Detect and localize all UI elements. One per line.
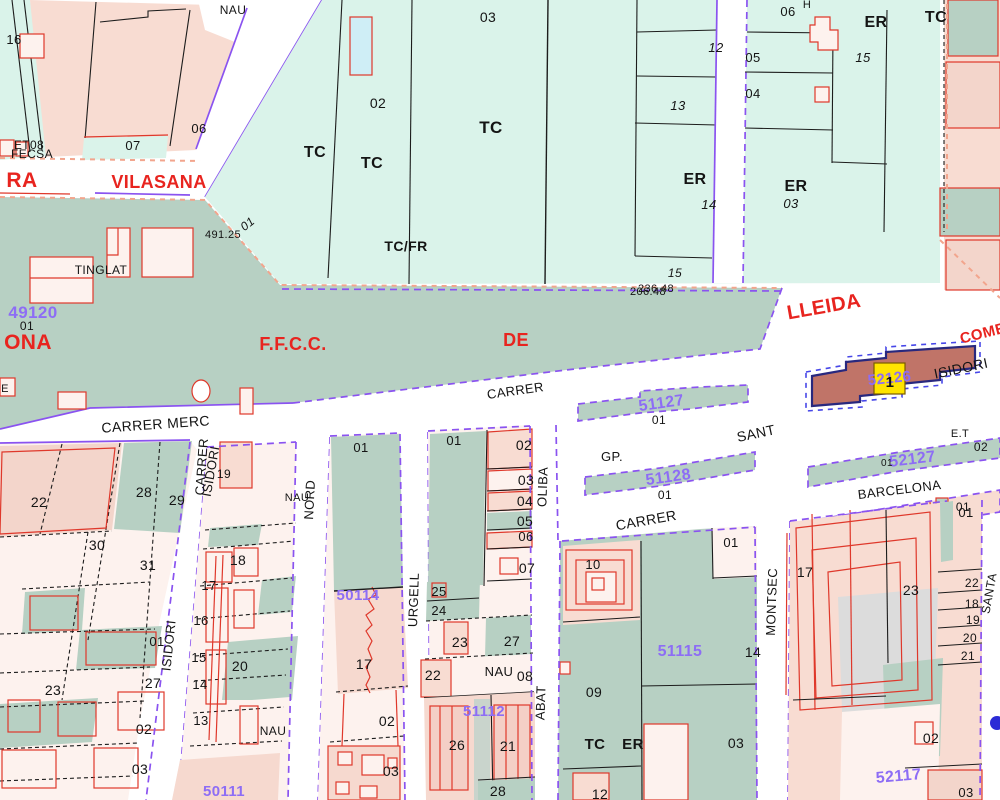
map-label: 05 [745,50,760,65]
map-label: 21 [500,738,516,754]
block-52117 [788,499,982,800]
map-label: 01 [723,535,738,550]
building-outline[interactable] [940,188,1000,236]
map-label: 28 [490,783,506,799]
map-label: 07 [519,560,535,576]
map-label: 01 [958,505,973,520]
parcel-area[interactable] [478,778,535,800]
map-label: 01 [652,413,666,427]
parcel-area[interactable] [258,576,296,615]
map-label: 1 [886,374,895,391]
building-outline[interactable] [220,442,252,488]
map-label: 04 [517,493,533,509]
building-outline[interactable] [928,770,982,800]
building-outline [362,755,384,775]
map-label: 03 [480,9,496,25]
parcel-area[interactable] [331,434,403,591]
map-label: VILASANA [111,172,206,192]
map-label: 18 [965,597,979,611]
map-label: 15 [191,650,206,665]
map-label: 14 [745,644,761,660]
parcel-area[interactable] [248,697,290,748]
map-label: GP. [601,449,623,464]
map-label: 22 [965,576,979,590]
map-label: TC/FR [384,238,427,254]
building-outline[interactable] [948,0,998,56]
map-label: 03 [728,735,744,751]
map-label: 18 [230,552,246,568]
map-label: TC [361,155,383,172]
map-label: 13 [193,713,208,728]
map-label: 23 [452,634,468,650]
map-label: 05 [517,513,533,529]
map-label: 28 [136,484,152,500]
map-label: 23 [903,582,919,598]
map-label: 02 [516,437,532,453]
map-label: H [803,0,811,11]
parcel-area[interactable] [712,526,757,579]
map-label: 20 [232,658,248,674]
map-label: 02 [136,721,152,737]
map-label: TC [925,9,947,26]
building-outline[interactable] [142,228,193,277]
map-label: 07 [125,138,140,153]
map-label: ER [864,14,887,31]
map-label: 15 [668,266,682,280]
map-label: DE [503,330,529,350]
map-label: 12 [708,40,724,55]
building-outline[interactable] [240,388,253,414]
map-label: 13 [670,98,686,113]
map-label: 26 [449,737,465,753]
map-label: OLIBA [534,466,550,507]
map-label: 17 [797,564,813,580]
map-label: ER [784,178,807,195]
tank-circle[interactable] [192,380,210,402]
map-label: 206.48 [630,286,666,298]
map-label: TC [479,118,502,137]
map-label: 23 [45,682,61,698]
map-label: 06 [518,529,533,544]
map-label: 03 [132,761,148,777]
map-label: 02 [974,440,988,454]
map-label: TC [585,736,606,753]
building-outline[interactable] [58,392,86,409]
map-label: ABAT [532,685,548,720]
map-label: 15 [855,50,871,65]
map-label: 03 [383,763,399,779]
map-label: 03 [958,785,973,800]
map-label: 25 [431,584,446,599]
map-label: ONA [4,331,52,354]
building-outline [592,578,604,590]
map-label: F.F.C.C. [259,334,326,354]
building-outline[interactable] [350,17,372,75]
map-label: 29 [169,492,185,508]
map-label: 20 [963,631,977,645]
map-label: NAU [220,3,247,17]
map-label: E.T [951,428,969,440]
map-label: 27 [145,675,161,691]
map-label: 14 [192,677,207,692]
building-outline [560,662,570,674]
map-label: 09 [586,684,602,700]
block-nord-urgell [318,433,408,800]
map-label: 30 [89,537,105,553]
right-top-column [940,0,1000,298]
map-label: 01 [658,488,672,502]
map-label: 06 [780,4,795,19]
map-label: 08 [517,668,533,684]
building-outline[interactable] [946,62,1000,128]
map-label: ER [683,171,706,188]
parcel-area[interactable] [428,431,486,587]
parcel-area[interactable] [0,443,122,537]
map-label: URGELL [405,572,422,627]
cadastral-map: 16NAU0607ET08FECSARAVILASANA0203TCTCTCTC… [0,0,1000,800]
map-label: 16 [193,613,208,628]
map-label: 24 [431,603,446,618]
map-label: 51115 [658,643,703,660]
map-label: 01 [881,458,893,469]
map-label: 10 [585,557,600,572]
map-label: 06 [191,121,206,136]
building-outline [360,786,377,798]
map-label: 491.25 [205,229,241,241]
map-label: 02 [370,95,386,111]
map-label: 50111 [203,783,245,800]
map-label: 22 [425,667,441,683]
map-label: 12 [592,786,608,800]
building-outline[interactable] [20,34,44,58]
building-outline[interactable] [946,240,1000,290]
map-label: 01 [446,433,461,448]
building-outline[interactable] [815,87,829,102]
map-label: FECSA [11,147,53,161]
map-label: 14 [701,197,716,212]
map-label: NAU [260,724,287,738]
parcel-area[interactable] [940,501,953,562]
map-label: 51112 [463,703,505,720]
map-label: 19 [966,613,980,627]
map-label: NAU [285,492,309,504]
map-label: E [1,383,9,395]
building-outline [336,782,349,794]
map-label: 19 [217,467,231,481]
map-label: ER [622,736,644,753]
map-label: 17 [201,578,216,593]
map-label: 17 [356,656,372,672]
map-label: TINGLAT [75,263,128,277]
map-label: 02 [923,730,939,746]
map-label: 50114 [337,587,380,604]
map-label: 31 [140,557,156,573]
map-label: 01 [353,440,368,455]
map-label: 16 [6,32,21,47]
top-cyan-area [205,0,940,284]
map-label: 22 [31,494,47,510]
map-label: TC [304,144,326,161]
map-label: 02 [379,713,395,729]
map-label: MONTSEC [763,568,780,636]
building-outline [338,752,352,765]
map-label: 27 [504,633,520,649]
map-label: RA [6,169,37,192]
map-label: NAU [485,664,514,679]
map-label: 03 [783,196,799,211]
map-label: 03 [518,472,534,488]
map-label: 21 [961,649,975,663]
building-outline[interactable] [644,724,688,800]
map-label: 04 [745,86,760,101]
